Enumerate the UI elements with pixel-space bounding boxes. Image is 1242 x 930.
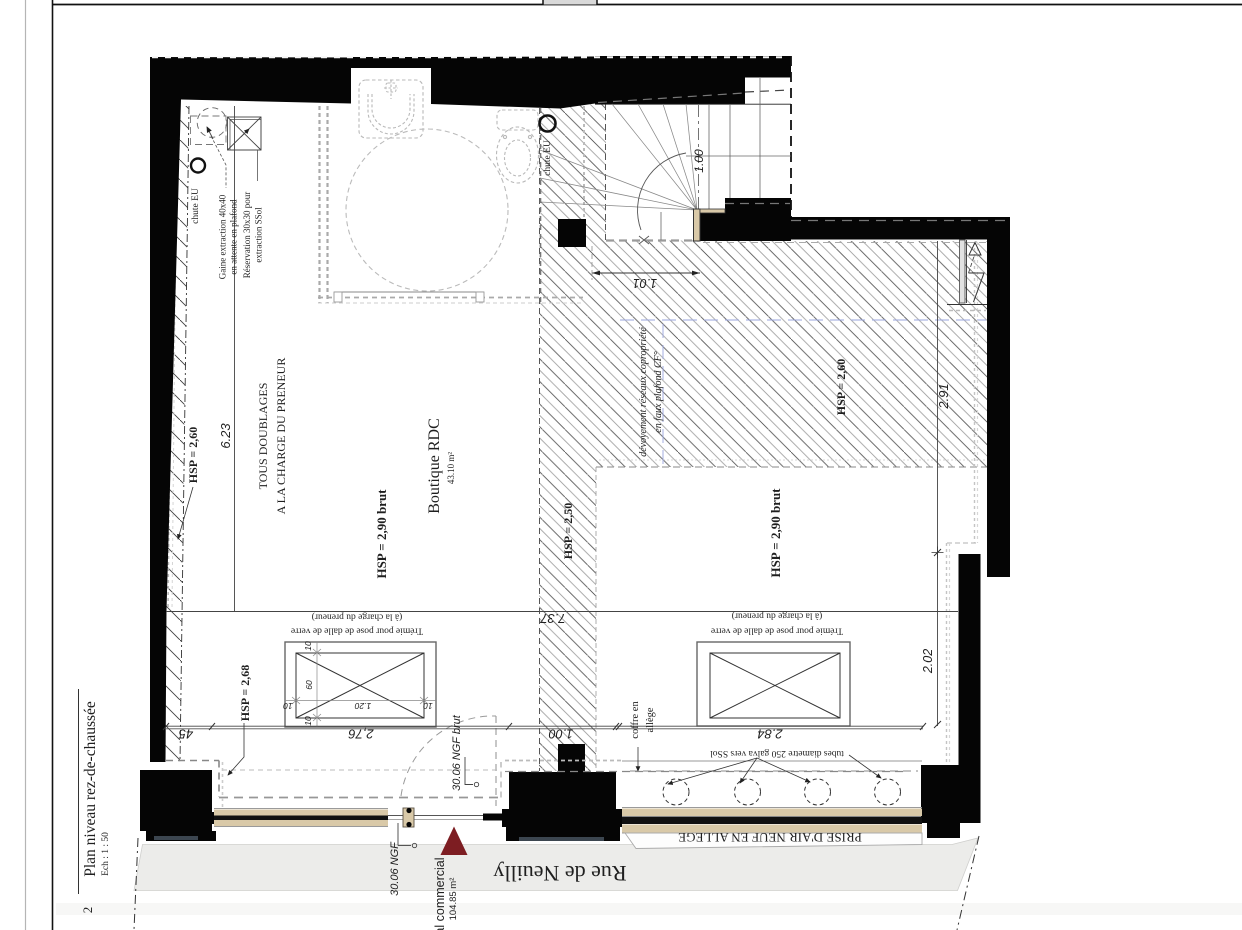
svg-text:coffre en: coffre en [630,701,641,739]
svg-text:2.02: 2.02 [921,649,935,674]
svg-text:al commercial: al commercial [433,857,447,930]
svg-text:en attente en plafond: en attente en plafond [229,199,239,275]
svg-text:allège: allège [645,707,656,732]
svg-text:Trémie pour pose de dalle de v: Trémie pour pose de dalle de verre [291,626,423,636]
svg-text:(à la charge du preneur): (à la charge du preneur) [732,611,823,622]
svg-text:10: 10 [303,641,313,651]
svg-text:10: 10 [283,701,293,711]
svg-text:extraction SSol: extraction SSol [254,207,264,263]
svg-text:tubes diametre 250 galva vers: tubes diametre 250 galva vers SSol [710,748,844,758]
svg-text:2: 2 [80,907,95,914]
svg-text:chute EU: chute EU [543,140,553,176]
svg-text:2.91: 2.91 [936,383,951,409]
svg-text:Ech : 1 : 50: Ech : 1 : 50 [101,832,111,876]
svg-text:HSP = 2,60: HSP = 2,60 [834,359,848,416]
svg-text:1.00: 1.00 [549,727,573,741]
svg-text:60: 60 [304,680,314,690]
svg-text:1.00: 1.00 [692,149,706,173]
svg-text:104.85 m²: 104.85 m² [448,878,459,921]
svg-text:6.23: 6.23 [218,423,233,449]
svg-text:HSP = 2,60: HSP = 2,60 [186,427,200,484]
svg-text:A LA CHARGE DU PRENEUR: A LA CHARGE DU PRENEUR [274,358,288,515]
svg-text:HSP = 2,90 brut: HSP = 2,90 brut [374,489,389,579]
svg-text:10: 10 [303,716,313,726]
svg-text:43.10 m²: 43.10 m² [446,452,456,485]
svg-text:HSP = 2,50: HSP = 2,50 [561,503,575,560]
svg-text:Rue de Neuilly: Rue de Neuilly [493,861,626,886]
svg-text:1.01: 1.01 [633,276,657,290]
svg-text:chute EU: chute EU [191,188,201,224]
svg-text:30.06 NGF: 30.06 NGF [389,841,401,896]
svg-text:Réservation 30x30 pour: Réservation 30x30 pour [242,192,252,278]
svg-text:HSP = 2,90 brut: HSP = 2,90 brut [768,488,783,578]
svg-text:Gaine extraction 40x40: Gaine extraction 40x40 [218,194,228,279]
svg-text:HSP = 2,68: HSP = 2,68 [238,665,252,722]
svg-text:Boutique RDC: Boutique RDC [426,418,443,514]
svg-text:TOUS DOUBLAGES: TOUS DOUBLAGES [256,383,270,490]
svg-text:Trémie pour pose de dalle de v: Trémie pour pose de dalle de verre [711,626,843,636]
svg-text:2,76: 2,76 [348,727,375,742]
svg-text:2.84: 2.84 [757,727,783,742]
svg-text:dévoyement réseaux copropriété: dévoyement réseaux copropriété [638,327,649,457]
svg-text:Plan niveau rez-de-chaussée: Plan niveau rez-de-chaussée [82,701,99,877]
svg-text:7.37: 7.37 [540,611,566,626]
svg-text:1.20: 1.20 [354,701,371,711]
svg-text:en faux plafond CF°: en faux plafond CF° [653,351,664,433]
svg-text:PRISE D'AIR NEUF EN ALLEGE: PRISE D'AIR NEUF EN ALLEGE [678,830,862,845]
svg-text:30.06 NGF brut: 30.06 NGF brut [451,714,463,791]
svg-text:45: 45 [178,727,193,742]
svg-text:(à la charge du preneur): (à la charge du preneur) [312,612,403,623]
svg-text:10: 10 [423,701,433,711]
